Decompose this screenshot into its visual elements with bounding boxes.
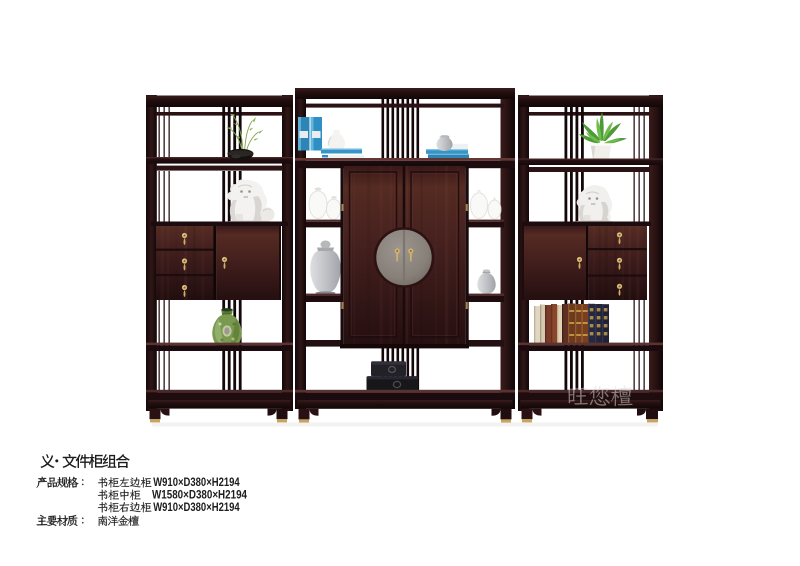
svg-text:W910×D380×H2194: W910×D380×H2194: [153, 500, 240, 514]
